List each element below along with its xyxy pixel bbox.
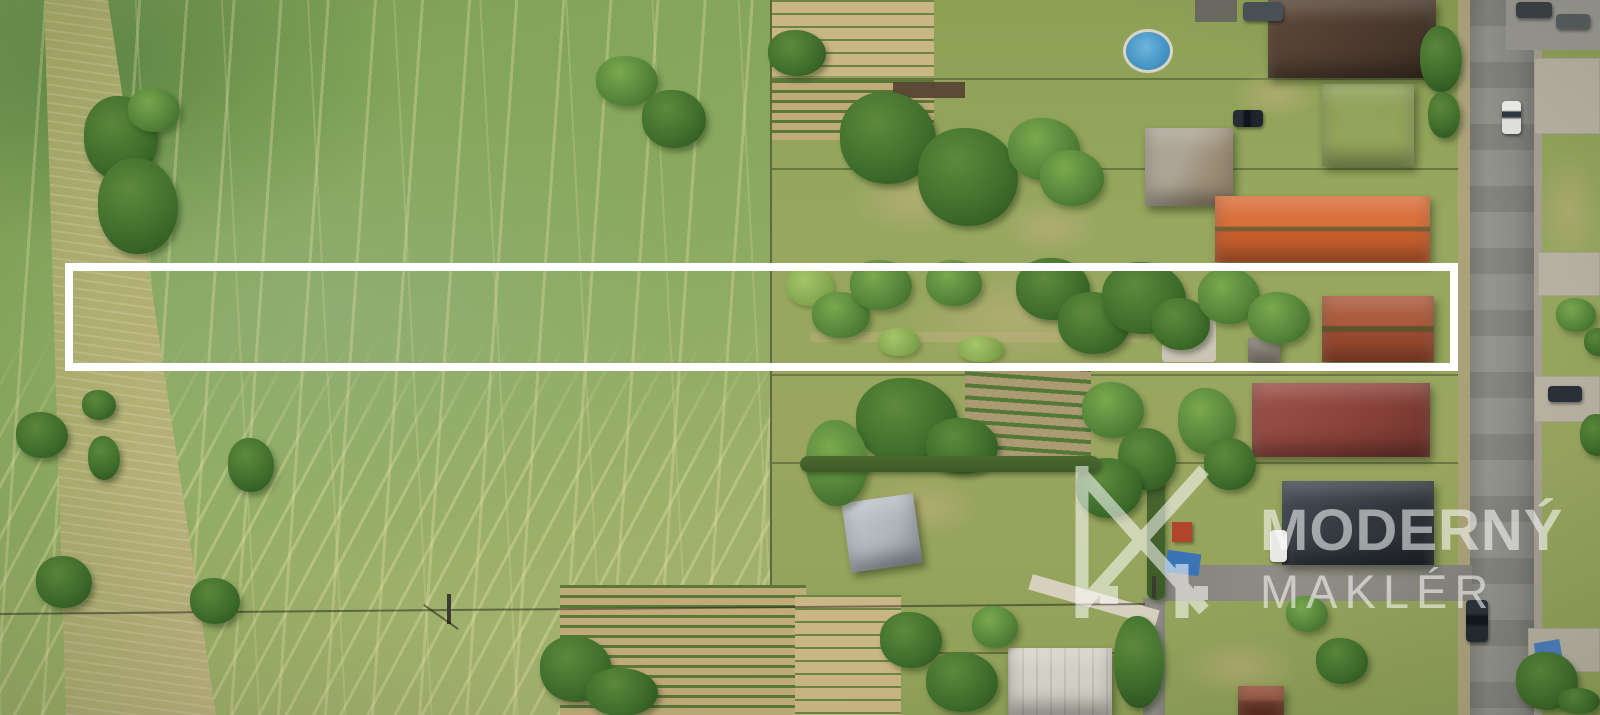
bush xyxy=(1556,298,1596,332)
tree xyxy=(1114,616,1164,708)
tree xyxy=(768,30,826,76)
parked-car xyxy=(1556,14,1590,29)
garden-house-metal-roof xyxy=(841,493,922,572)
plot-highlight-rectangle xyxy=(65,263,1458,371)
tree xyxy=(82,390,116,420)
aerial-photo: MODERNÝ MAKLÉR xyxy=(0,0,1600,715)
white-car-on-road xyxy=(1502,101,1521,134)
hedgerow xyxy=(800,456,1100,472)
tree xyxy=(1040,150,1104,206)
mm-monogram-icon xyxy=(1058,460,1210,622)
tree xyxy=(1428,92,1460,138)
tree xyxy=(228,438,274,492)
tree xyxy=(642,90,706,148)
white-building xyxy=(1008,648,1112,715)
round-pool xyxy=(1126,32,1170,70)
tree xyxy=(586,668,658,715)
dark-shed-top xyxy=(1195,0,1237,22)
grey-shed xyxy=(1145,128,1233,206)
tree xyxy=(190,578,240,624)
paved-yard xyxy=(1534,58,1600,134)
tree xyxy=(1316,638,1368,684)
tree xyxy=(926,652,998,712)
red-shed-bottom xyxy=(1238,686,1284,715)
house-orange-roof xyxy=(1215,196,1430,262)
fence-line xyxy=(772,374,1464,376)
tree xyxy=(880,612,942,668)
tree xyxy=(1558,688,1600,714)
building-rusty-flat-roof xyxy=(1322,84,1414,166)
tree xyxy=(16,412,68,458)
watermark-text: MODERNÝ MAKLÉR xyxy=(1260,502,1563,622)
black-car xyxy=(1233,110,1263,127)
paved-drive xyxy=(1538,252,1600,296)
watermark-brand-subtitle: MAKLÉR xyxy=(1260,568,1563,615)
dark-parked-car xyxy=(1548,386,1582,402)
tree xyxy=(98,158,178,254)
tree xyxy=(128,88,180,132)
house-dark-brown-roof xyxy=(1268,0,1436,78)
dry-grass-patch xyxy=(1000,200,1100,255)
tree xyxy=(972,606,1018,648)
grey-car xyxy=(1243,2,1283,21)
watermark-brand-name: MODERNÝ xyxy=(1260,502,1563,560)
tree xyxy=(88,436,120,480)
parked-car xyxy=(1516,2,1552,18)
tree xyxy=(918,128,1018,226)
tree xyxy=(36,556,92,608)
house-red-roof xyxy=(1252,383,1430,457)
brand-watermark: MODERNÝ MAKLÉR xyxy=(1058,460,1563,622)
tree xyxy=(1420,26,1462,92)
